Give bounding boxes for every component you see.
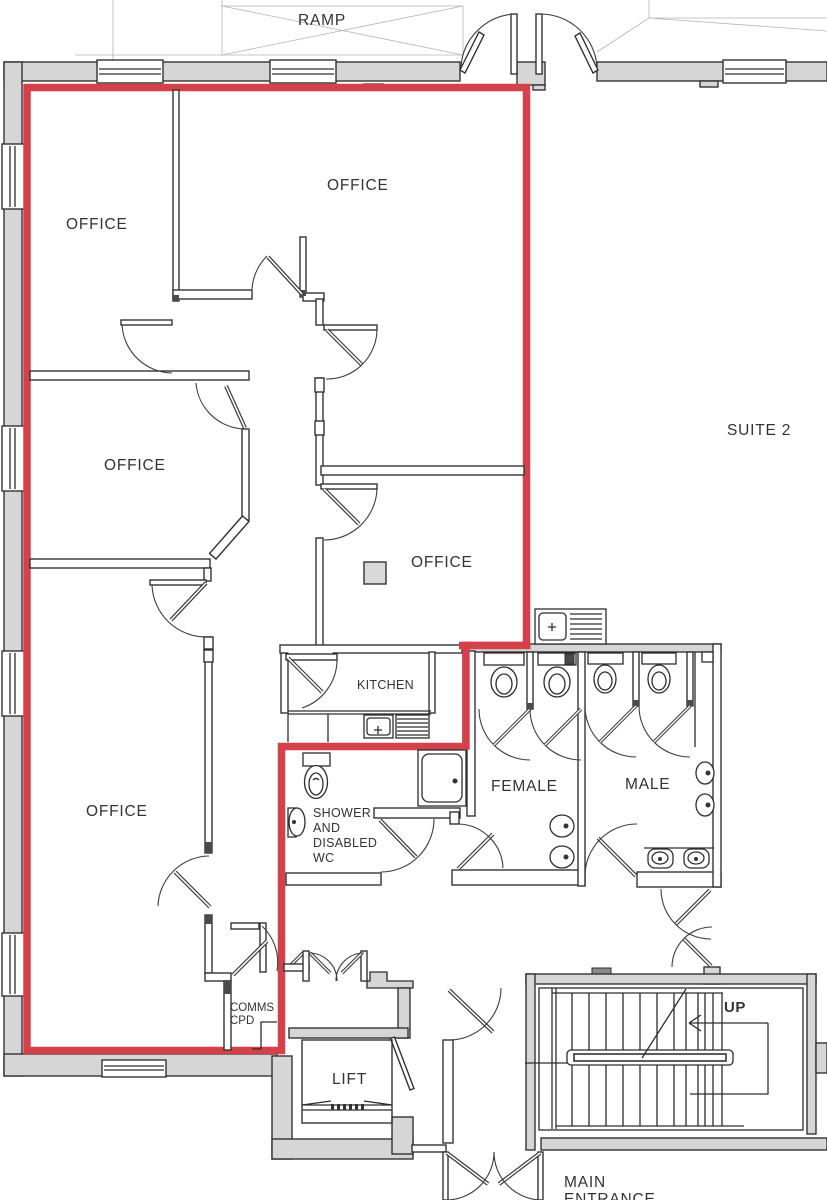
svg-text:KITCHEN: KITCHEN xyxy=(357,678,414,692)
svg-text:OFFICE: OFFICE xyxy=(104,457,166,474)
svg-text:SHOWER: SHOWER xyxy=(313,806,371,820)
svg-text:COMMS: COMMS xyxy=(230,1002,274,1014)
svg-text:AND: AND xyxy=(313,821,340,835)
svg-text:ENTRANCE: ENTRANCE xyxy=(564,1191,656,1200)
svg-text:MAIN: MAIN xyxy=(564,1174,606,1191)
svg-text:UP: UP xyxy=(724,999,746,1016)
svg-text:WC: WC xyxy=(313,851,334,865)
svg-text:SUITE 2: SUITE 2 xyxy=(727,422,791,439)
svg-text:OFFICE: OFFICE xyxy=(327,177,389,194)
svg-text:CPD: CPD xyxy=(230,1015,254,1027)
svg-text:OFFICE: OFFICE xyxy=(66,216,128,233)
svg-text:FEMALE: FEMALE xyxy=(491,778,558,795)
svg-text:RAMP: RAMP xyxy=(298,12,346,29)
svg-text:DISABLED: DISABLED xyxy=(313,836,377,850)
svg-text:MALE: MALE xyxy=(625,776,670,793)
svg-text:OFFICE: OFFICE xyxy=(86,803,148,820)
svg-text:LIFT: LIFT xyxy=(332,1071,367,1088)
svg-text:OFFICE: OFFICE xyxy=(411,554,473,571)
